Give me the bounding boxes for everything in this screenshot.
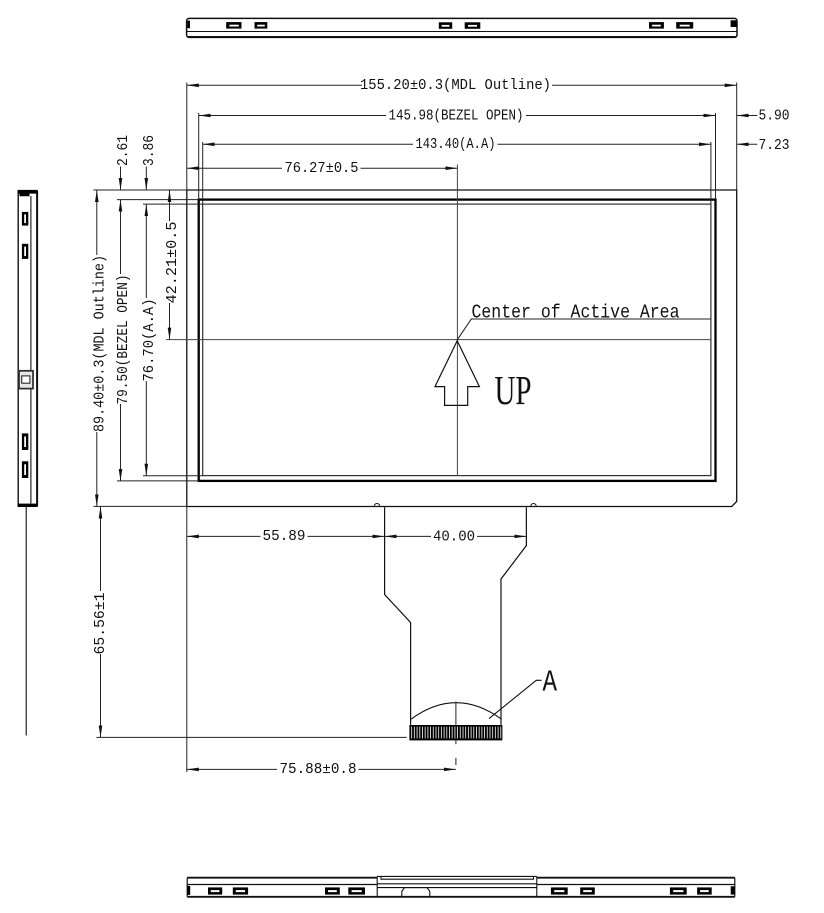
svg-text:UP: UP	[495, 367, 532, 413]
svg-text:76.70(A.A): 76.70(A.A)	[141, 299, 158, 382]
svg-text:42.21±0.5: 42.21±0.5	[164, 222, 181, 304]
svg-text:155.20±0.3(MDL Outline): 155.20±0.3(MDL Outline)	[360, 77, 551, 94]
svg-text:2.61: 2.61	[115, 135, 132, 166]
svg-text:Center of Active Area: Center of Active Area	[472, 301, 680, 323]
svg-text:75.88±0.8: 75.88±0.8	[280, 761, 357, 778]
svg-text:76.27±0.5: 76.27±0.5	[285, 160, 359, 177]
svg-text:40.00: 40.00	[433, 528, 475, 545]
svg-text:65.56±1: 65.56±1	[92, 593, 109, 655]
svg-text:89.40±0.3(MDL Outline): 89.40±0.3(MDL Outline)	[91, 255, 108, 432]
svg-text:145.98(BEZEL OPEN): 145.98(BEZEL OPEN)	[389, 107, 524, 124]
svg-text:143.40(A.A): 143.40(A.A)	[416, 136, 496, 153]
svg-text:A: A	[543, 665, 558, 700]
svg-text:7.23: 7.23	[759, 137, 790, 154]
svg-text:3.86: 3.86	[141, 135, 158, 166]
svg-text:5.90: 5.90	[759, 108, 790, 125]
svg-text:79.50(BEZEL OPEN): 79.50(BEZEL OPEN)	[115, 275, 132, 405]
svg-text:55.89: 55.89	[263, 528, 306, 545]
